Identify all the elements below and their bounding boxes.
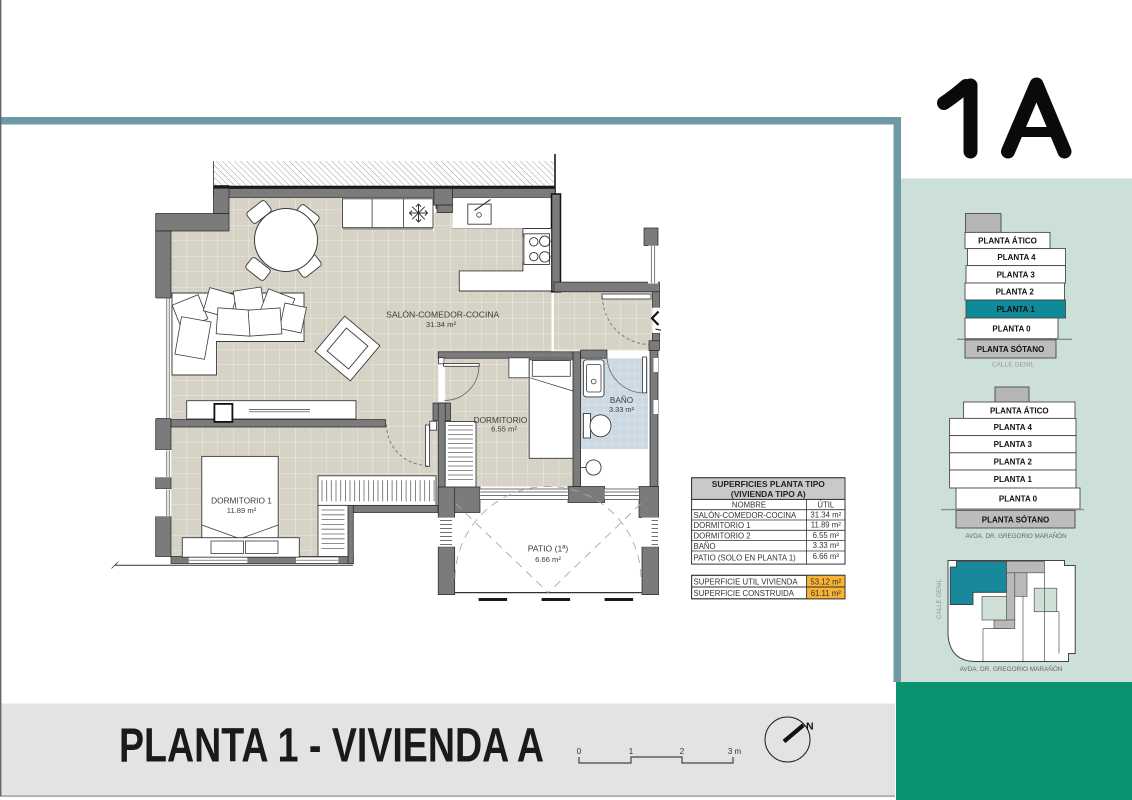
svg-text:PLANTA 3: PLANTA 3 [994, 440, 1033, 449]
svg-text:PLANTA ÁTICO: PLANTA ÁTICO [990, 406, 1049, 415]
svg-text:PLANTA 1 - VIVIENDA A: PLANTA 1 - VIVIENDA A [119, 719, 544, 772]
svg-text:6.66 m²: 6.66 m² [535, 555, 561, 564]
svg-text:BAÑO: BAÑO [610, 395, 633, 405]
svg-text:11.89 m²: 11.89 m² [227, 506, 257, 515]
svg-text:61.11 m²: 61.11 m² [811, 589, 842, 598]
svg-text:6.55 m²: 6.55 m² [491, 425, 517, 434]
svg-text:PLANTA 1: PLANTA 1 [994, 475, 1033, 484]
svg-text:PLANTA 4: PLANTA 4 [994, 423, 1033, 432]
svg-text:31.34 m²: 31.34 m² [810, 510, 841, 519]
svg-text:SUPERFICIES PLANTA TIPO: SUPERFICIES PLANTA TIPO [712, 479, 826, 489]
svg-text:PATIO (1ª): PATIO (1ª) [528, 544, 569, 554]
svg-text:DORMITORIO 1: DORMITORIO 1 [211, 496, 272, 506]
svg-text:3.33 m²: 3.33 m² [813, 541, 840, 550]
svg-text:BAÑO: BAÑO [694, 542, 716, 551]
svg-text:PLANTA 3: PLANTA 3 [997, 270, 1036, 279]
svg-text:NOMBRE: NOMBRE [732, 501, 766, 510]
svg-text:1: 1 [629, 747, 634, 756]
svg-text:6.66 m²: 6.66 m² [813, 552, 840, 561]
svg-text:PLANTA 2: PLANTA 2 [996, 288, 1035, 297]
svg-text:N: N [806, 721, 814, 733]
svg-text:AVDA. DR. GREGORIO MARAÑÓN: AVDA. DR. GREGORIO MARAÑÓN [965, 531, 1067, 540]
svg-text:PLANTA 0: PLANTA 0 [992, 324, 1031, 333]
svg-text:PLANTA SÓTANO: PLANTA SÓTANO [982, 515, 1049, 524]
svg-text:SUPERFICIE UTIL VIVIENDA: SUPERFICIE UTIL VIVIENDA [694, 578, 799, 587]
svg-text:PLANTA SÓTANO: PLANTA SÓTANO [977, 345, 1044, 354]
svg-text:SALÓN-COMEDOR-COCINA: SALÓN-COMEDOR-COCINA [694, 511, 797, 520]
svg-text:ÚTIL: ÚTIL [817, 501, 835, 510]
svg-text:DORMITORIO 1: DORMITORIO 1 [694, 521, 751, 530]
svg-text:PATIO (SOLO EN PLANTA 1): PATIO (SOLO EN PLANTA 1) [694, 554, 797, 563]
svg-text:PLANTA 0: PLANTA 0 [999, 495, 1038, 504]
svg-text:53.12 m²: 53.12 m² [810, 578, 841, 587]
svg-text:0: 0 [577, 747, 582, 756]
svg-text:PLANTA 1: PLANTA 1 [997, 305, 1036, 314]
svg-text:SALÓN-COMEDOR-COCINA: SALÓN-COMEDOR-COCINA [386, 310, 499, 320]
svg-text:PLANTA ÁTICO: PLANTA ÁTICO [978, 237, 1037, 246]
svg-text:SUPERFICIE CONSTRUIDA: SUPERFICIE CONSTRUIDA [694, 589, 795, 598]
svg-text:31.34 m²: 31.34 m² [426, 320, 456, 329]
svg-text:(VIVIENDA TIPO A): (VIVIENDA TIPO A) [731, 489, 806, 499]
svg-text:DORMITORIO: DORMITORIO [474, 415, 528, 425]
svg-text:PLANTA 2: PLANTA 2 [994, 457, 1033, 466]
svg-text:CALLE GENIL: CALLE GENIL [936, 579, 943, 619]
svg-text:2: 2 [680, 747, 685, 756]
svg-text:3 m: 3 m [728, 747, 742, 756]
svg-text:CALLE GENIL: CALLE GENIL [992, 362, 1035, 369]
svg-text:DORMITORIO 2: DORMITORIO 2 [694, 532, 751, 541]
svg-text:6.55 m²: 6.55 m² [813, 531, 840, 540]
svg-text:PLANTA 4: PLANTA 4 [997, 253, 1036, 262]
svg-text:AVDA. DR. GREGORIO MARAÑÓN: AVDA. DR. GREGORIO MARAÑÓN [960, 664, 1063, 673]
svg-text:11.89 m²: 11.89 m² [811, 521, 842, 530]
svg-text:3.33 m²: 3.33 m² [609, 405, 635, 414]
